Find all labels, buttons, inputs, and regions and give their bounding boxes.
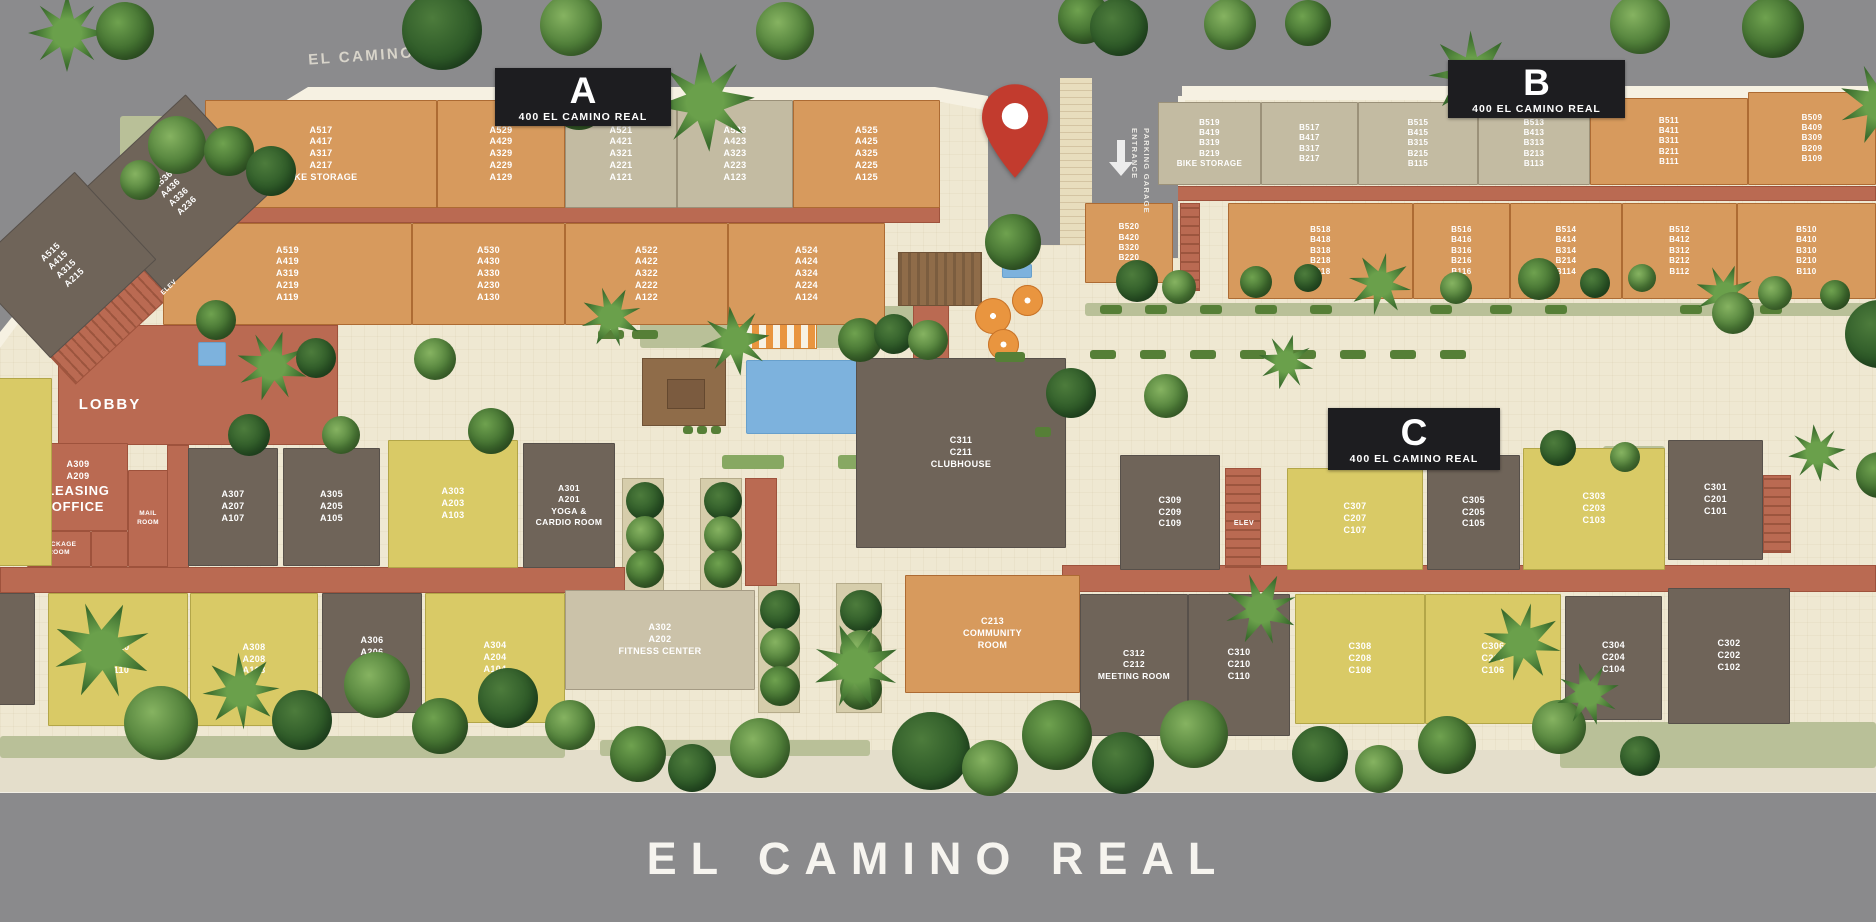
unit-label: B509 — [1802, 113, 1823, 123]
tree-icon — [272, 690, 332, 750]
unit-label: A430 — [477, 256, 500, 268]
unit-label: C108 — [1348, 665, 1371, 677]
unit-label: B109 — [1802, 154, 1823, 164]
map-label-elev: ELEV — [1227, 520, 1261, 527]
tree-icon — [760, 590, 800, 630]
tree-icon — [1294, 264, 1322, 292]
unit-label: B213 — [1524, 149, 1545, 159]
unit-label: C203 — [1582, 503, 1605, 515]
building-letter: C — [1401, 414, 1428, 451]
tree-icon — [246, 146, 296, 196]
unit-label: A203 — [441, 498, 464, 510]
unit-label: A219 — [276, 280, 299, 292]
unit-label: C301 — [1704, 482, 1727, 494]
unit-label: C210 — [1227, 659, 1250, 671]
unit-label: C106 — [1481, 665, 1504, 677]
block-c305[interactable]: C305C205C105 — [1427, 455, 1520, 570]
unit-label: C205 — [1462, 507, 1485, 519]
unit-label: A524 — [795, 245, 818, 257]
unit-label: A530 — [477, 245, 500, 257]
tree-icon — [344, 652, 410, 718]
unit-label: B416 — [1451, 235, 1472, 245]
tree-icon — [1518, 258, 1560, 300]
pool-water — [198, 342, 226, 366]
hedge — [1190, 350, 1216, 359]
unit-label: C308 — [1348, 641, 1371, 653]
tree-icon — [1580, 268, 1610, 298]
unit-label: B212 — [1669, 256, 1690, 266]
unit-label: A130 — [477, 292, 500, 304]
tree-icon — [228, 414, 270, 456]
unit-label: A525 — [855, 125, 878, 137]
unit-label: A425 — [855, 136, 878, 148]
patio-umbrella — [1012, 285, 1043, 316]
unit-label: A202 — [648, 634, 671, 646]
walkway-corridor — [0, 567, 625, 593]
tree-icon — [626, 550, 664, 588]
tree-icon — [96, 2, 154, 60]
unit-label: A423 — [723, 136, 746, 148]
stairs — [1225, 468, 1261, 568]
unit-label: A217 — [309, 160, 332, 172]
unit-label: A325 — [855, 148, 878, 160]
unit-label: A429 — [489, 136, 512, 148]
unit-label: A522 — [635, 245, 658, 257]
unit-label: A306 — [360, 635, 383, 647]
unit-label: C104 — [1602, 664, 1625, 676]
building-letter: A — [570, 72, 597, 109]
tree-icon — [704, 550, 742, 588]
tree-icon — [478, 668, 538, 728]
tree-icon — [468, 408, 514, 454]
hedge — [995, 352, 1025, 362]
tree-icon — [760, 666, 800, 706]
unit-label: B415 — [1408, 128, 1429, 138]
unit-label: C213 — [981, 616, 1004, 628]
tree-icon — [1162, 270, 1196, 304]
unit-label: C211 — [950, 447, 973, 459]
tree-icon — [1610, 442, 1640, 472]
unit-label: C309 — [1158, 495, 1181, 507]
unit-label: C311 — [950, 435, 973, 447]
unit-label: B511 — [1659, 116, 1679, 126]
tree-icon — [1856, 452, 1876, 498]
block-c213[interactable]: C213COMMUNITYROOM — [905, 575, 1080, 693]
unit-label: C209 — [1158, 507, 1181, 519]
tree-icon — [610, 726, 666, 782]
unit-label: BIKE STORAGE — [1177, 159, 1243, 169]
stairs — [1763, 475, 1791, 553]
hedge — [1390, 350, 1416, 359]
tree-icon — [1285, 0, 1331, 46]
hedge — [1100, 305, 1122, 314]
unit-label: A307 — [221, 489, 244, 501]
unit-label: A519 — [276, 245, 299, 257]
tree-icon — [124, 686, 198, 760]
unit-label: A207 — [221, 501, 244, 513]
tree-icon — [1090, 0, 1148, 56]
unit-label: A422 — [635, 256, 658, 268]
tree-icon — [1540, 430, 1576, 466]
unit-label: C307 — [1343, 501, 1366, 513]
unit-label: A107 — [221, 513, 244, 525]
unit-label: A224 — [795, 280, 818, 292]
unit-label: A124 — [795, 292, 818, 304]
unit-label: B319 — [1199, 138, 1220, 148]
lawn-patch — [722, 455, 784, 469]
block-a307[interactable]: A307A207A107 — [188, 448, 278, 566]
block-b517[interactable]: B517B417B317B217 — [1261, 102, 1358, 185]
hedge — [711, 426, 721, 434]
unit-label: C310 — [1227, 647, 1250, 659]
tree-icon — [1628, 264, 1656, 292]
location-pin-icon[interactable] — [982, 84, 1048, 183]
unit-label: B318 — [1310, 246, 1331, 256]
unit-label: B309 — [1802, 133, 1823, 143]
hedge — [1430, 305, 1452, 314]
block-b519[interactable]: B519B419B319B219BIKE STORAGE — [1158, 102, 1261, 185]
unit-label: A105 — [320, 513, 343, 525]
unit-label: A303 — [441, 486, 464, 498]
block-b510[interactable]: B510B410B310B210B110 — [1737, 203, 1876, 299]
building-c-plaque: C400 EL CAMINO REAL — [1328, 408, 1500, 470]
unit-label: A329 — [489, 148, 512, 160]
unit-label: A129 — [489, 172, 512, 184]
street-label-bottom: EL CAMINO REAL — [0, 833, 1876, 885]
unit-label: B113 — [1524, 159, 1544, 169]
unit-label: C305 — [1462, 495, 1485, 507]
unit-label: B515 — [1408, 118, 1429, 128]
tree-icon — [704, 482, 742, 520]
unit-label: C303 — [1582, 491, 1605, 503]
block-unlabeled[interactable] — [91, 531, 128, 567]
hedge — [697, 426, 707, 434]
map-label-lobby: LOBBY — [60, 396, 160, 413]
walkway-corridor — [745, 478, 777, 586]
tree-icon — [1712, 292, 1754, 334]
unit-label: B214 — [1556, 256, 1577, 266]
unit-label: B310 — [1796, 246, 1817, 256]
unit-label: A419 — [276, 256, 299, 268]
unit-label: B311 — [1659, 136, 1679, 146]
tree-icon — [985, 214, 1041, 270]
block-c309[interactable]: C309C209C109 — [1120, 455, 1220, 570]
unit-label: C102 — [1717, 662, 1740, 674]
tree-icon — [545, 700, 595, 750]
tree-icon — [1418, 716, 1476, 774]
building-address: 400 EL CAMINO REAL — [1350, 453, 1479, 465]
block-a302[interactable]: A302A202FITNESS CENTER — [565, 590, 755, 690]
walkway-corridor — [150, 207, 940, 223]
block-c302[interactable]: C302C202C102 — [1668, 588, 1790, 724]
tree-icon — [1292, 726, 1348, 782]
hedge — [1145, 305, 1167, 314]
block-a525[interactable]: A525A425A325A225A125 — [793, 100, 940, 208]
block-mail[interactable]: MAILROOM — [128, 470, 168, 567]
unit-label: B414 — [1556, 235, 1577, 245]
walkway-corridor — [167, 445, 189, 568]
unit-label: B517 — [1299, 123, 1320, 133]
unit-label: A208 — [242, 654, 265, 666]
tree-icon — [626, 516, 664, 554]
hedge — [1440, 350, 1466, 359]
tree-icon — [760, 628, 800, 668]
hedge — [1255, 305, 1277, 314]
unit-label: A302 — [648, 622, 671, 634]
unit-label: B411 — [1659, 126, 1679, 136]
hedge — [1680, 305, 1702, 314]
tree-icon — [756, 2, 814, 60]
tree-icon — [626, 482, 664, 520]
lawn-patch — [1560, 722, 1876, 768]
unit-label: B316 — [1451, 246, 1472, 256]
down-arrow-icon — [1117, 140, 1125, 162]
unit-label: B217 — [1299, 154, 1320, 164]
unit-label: B112 — [1669, 267, 1689, 277]
tree-icon — [1820, 280, 1850, 310]
building-address: 400 EL CAMINO REAL — [1472, 103, 1601, 115]
unit-label: LEASING — [46, 484, 109, 499]
hedge — [1090, 350, 1116, 359]
block-c311[interactable]: C311C211CLUBHOUSE — [856, 358, 1066, 548]
unit-label: B215 — [1408, 149, 1429, 159]
unit-label: A421 — [609, 136, 632, 148]
palm-tree-icon — [1785, 421, 1850, 486]
unit-label: A121 — [609, 172, 632, 184]
unit-label: B111 — [1659, 157, 1679, 167]
unit-label: B211 — [1659, 147, 1679, 157]
unit-label: B314 — [1556, 246, 1577, 256]
tree-icon — [1758, 276, 1792, 310]
tree-icon — [1204, 0, 1256, 50]
unit-label: ROOM — [137, 519, 159, 527]
unit-label: A304 — [483, 640, 506, 652]
tree-icon — [1144, 374, 1188, 418]
hedge — [1490, 305, 1512, 314]
unit-label: C312 — [1123, 648, 1145, 659]
building-b-plaque: B400 EL CAMINO REAL — [1448, 60, 1625, 118]
unit-label: A125 — [855, 172, 878, 184]
tree-icon — [1160, 700, 1228, 768]
unit-label: B312 — [1669, 246, 1690, 256]
unit-label: B413 — [1524, 128, 1545, 138]
unit-label: B512 — [1669, 225, 1690, 235]
unit-label: B410 — [1796, 235, 1817, 245]
unit-label: B419 — [1199, 128, 1220, 138]
tree-icon — [840, 590, 882, 632]
block-unlabeled[interactable] — [0, 378, 52, 566]
tree-icon — [1046, 368, 1096, 418]
unit-label: A123 — [723, 172, 746, 184]
block-a522[interactable]: A522A422A322A222A122 — [565, 223, 728, 325]
hedge — [1200, 305, 1222, 314]
unit-label: B409 — [1802, 123, 1823, 133]
unit-label: B317 — [1299, 144, 1320, 154]
hedge — [1310, 305, 1332, 314]
block-c301[interactable]: C301C201C101 — [1668, 440, 1763, 560]
unit-label: B518 — [1310, 225, 1331, 235]
unit-label: A229 — [489, 160, 512, 172]
unit-label: B412 — [1669, 235, 1690, 245]
building-a-plaque: A400 EL CAMINO REAL — [495, 68, 671, 126]
unit-label: C302 — [1717, 638, 1740, 650]
unit-label: B210 — [1796, 256, 1817, 266]
tree-icon — [1355, 745, 1403, 793]
unit-label: A521 — [609, 125, 632, 137]
building-address: 400 EL CAMINO REAL — [519, 111, 648, 123]
unit-label: B315 — [1408, 138, 1429, 148]
unit-label: A225 — [855, 160, 878, 172]
unit-label: MAIL — [139, 510, 157, 518]
unit-label: C207 — [1343, 513, 1366, 525]
walkway-corridor — [1085, 186, 1876, 201]
block-b509[interactable]: B509B409B309B209B109 — [1748, 92, 1876, 185]
unit-label: A330 — [477, 268, 500, 280]
tree-icon — [148, 116, 206, 174]
unit-label: C109 — [1158, 518, 1181, 530]
hedge — [1035, 427, 1051, 437]
palm-tree-icon — [1252, 328, 1320, 396]
unit-label: B510 — [1796, 225, 1817, 235]
unit-label: YOGA & — [551, 506, 587, 517]
unit-label: C105 — [1462, 518, 1485, 530]
tree-icon — [1240, 266, 1272, 298]
unit-label: A103 — [441, 510, 464, 522]
hedge — [1340, 350, 1366, 359]
tree-icon — [730, 718, 790, 778]
tree-icon — [704, 516, 742, 554]
wood-deck — [642, 358, 726, 426]
hedge — [683, 426, 693, 434]
tree-icon — [196, 300, 236, 340]
block-a530[interactable]: A530A430A330A230A130 — [412, 223, 565, 325]
unit-label: ROOM — [978, 640, 1008, 652]
unit-label: A221 — [609, 160, 632, 172]
outdoor-table — [667, 379, 705, 409]
unit-label: C201 — [1704, 494, 1727, 506]
unit-label: A317 — [309, 148, 332, 160]
unit-label: B313 — [1524, 138, 1545, 148]
tree-icon — [962, 740, 1018, 796]
building-letter: B — [1523, 64, 1550, 101]
unit-label: A323 — [723, 148, 746, 160]
unit-label: A201 — [558, 494, 580, 505]
unit-label: A204 — [483, 652, 506, 664]
parking-garage-entrance-line1: PARKING GARAGE — [1140, 128, 1152, 288]
unit-label: B219 — [1199, 149, 1220, 159]
unit-label: A319 — [276, 268, 299, 280]
unit-label: MEETING ROOM — [1098, 671, 1170, 682]
unit-label: B418 — [1310, 235, 1331, 245]
unit-label: B115 — [1408, 159, 1428, 169]
unit-label: C103 — [1582, 515, 1605, 527]
unit-label: A205 — [320, 501, 343, 513]
tree-icon — [892, 712, 970, 790]
unit-label: C212 — [1123, 659, 1145, 670]
tree-icon — [120, 160, 160, 200]
unit-label: A529 — [489, 125, 512, 137]
block-c303[interactable]: C303C203C103 — [1523, 448, 1665, 570]
parking-garage-entrance-line2: ENTRANCE — [1128, 128, 1140, 288]
block-a301[interactable]: A301A201YOGA &CARDIO ROOM — [523, 443, 615, 568]
unit-label: A417 — [309, 136, 332, 148]
unit-label: OFFICE — [52, 500, 104, 515]
community-site-map: EL CAMINO REAL A517A417A317A217BIKE STOR… — [0, 0, 1876, 922]
unit-label: C202 — [1717, 650, 1740, 662]
unit-label: C204 — [1602, 652, 1625, 664]
unit-label: B110 — [1796, 267, 1816, 277]
unit-label: B513 — [1524, 118, 1545, 128]
unit-label: A122 — [635, 292, 658, 304]
block-unlabeled[interactable] — [0, 593, 35, 705]
tree-icon — [1620, 736, 1660, 776]
hedge — [1545, 305, 1567, 314]
unit-label: COMMUNITY — [963, 628, 1022, 640]
unit-label: C304 — [1602, 640, 1625, 652]
hedge — [632, 330, 658, 339]
unit-label: A517 — [309, 125, 332, 137]
unit-label: A424 — [795, 256, 818, 268]
unit-label: A305 — [320, 489, 343, 501]
unit-label: C208 — [1348, 653, 1371, 665]
unit-label: FITNESS CENTER — [618, 646, 701, 658]
block-a303[interactable]: A303A203A103 — [388, 440, 518, 568]
unit-label: A308 — [242, 642, 265, 654]
unit-label: A223 — [723, 160, 746, 172]
tree-icon — [1440, 272, 1472, 304]
tree-icon — [322, 416, 360, 454]
tree-icon — [412, 698, 468, 754]
unit-label: CLUBHOUSE — [931, 459, 992, 471]
unit-label: A301 — [558, 483, 580, 494]
wood-deck — [898, 252, 982, 306]
unit-label: C101 — [1704, 506, 1727, 518]
unit-label: A324 — [795, 268, 818, 280]
unit-label: A230 — [477, 280, 500, 292]
unit-label: B514 — [1556, 225, 1577, 235]
unit-label: A309 — [66, 459, 89, 471]
tree-icon — [1022, 700, 1092, 770]
block-c308[interactable]: C308C208C108 — [1295, 594, 1425, 724]
unit-label: C107 — [1343, 525, 1366, 537]
parking-garage-entrance-label: PARKING GARAGE ENTRANCE — [1128, 128, 1152, 288]
tree-icon — [668, 744, 716, 792]
tree-icon — [296, 338, 336, 378]
hedge — [1240, 350, 1266, 359]
unit-label: B519 — [1199, 118, 1220, 128]
tree-icon — [1092, 732, 1154, 794]
unit-label: A209 — [66, 471, 89, 483]
unit-label: B209 — [1802, 144, 1823, 154]
unit-label: A222 — [635, 280, 658, 292]
unit-label: B516 — [1451, 225, 1472, 235]
unit-label: A321 — [609, 148, 632, 160]
unit-label: B216 — [1451, 256, 1472, 266]
unit-label: A322 — [635, 268, 658, 280]
unit-label: CARDIO ROOM — [536, 517, 603, 528]
unit-label: A119 — [276, 292, 299, 304]
unit-label: B417 — [1299, 133, 1320, 143]
block-a305[interactable]: A305A205A105 — [283, 448, 380, 566]
block-a524[interactable]: A524A424A324A224A124 — [728, 223, 885, 325]
tree-icon — [908, 320, 948, 360]
unit-label: C110 — [1228, 671, 1251, 683]
block-c307[interactable]: C307C207C107 — [1287, 468, 1423, 570]
tree-icon — [414, 338, 456, 380]
hedge — [1140, 350, 1166, 359]
